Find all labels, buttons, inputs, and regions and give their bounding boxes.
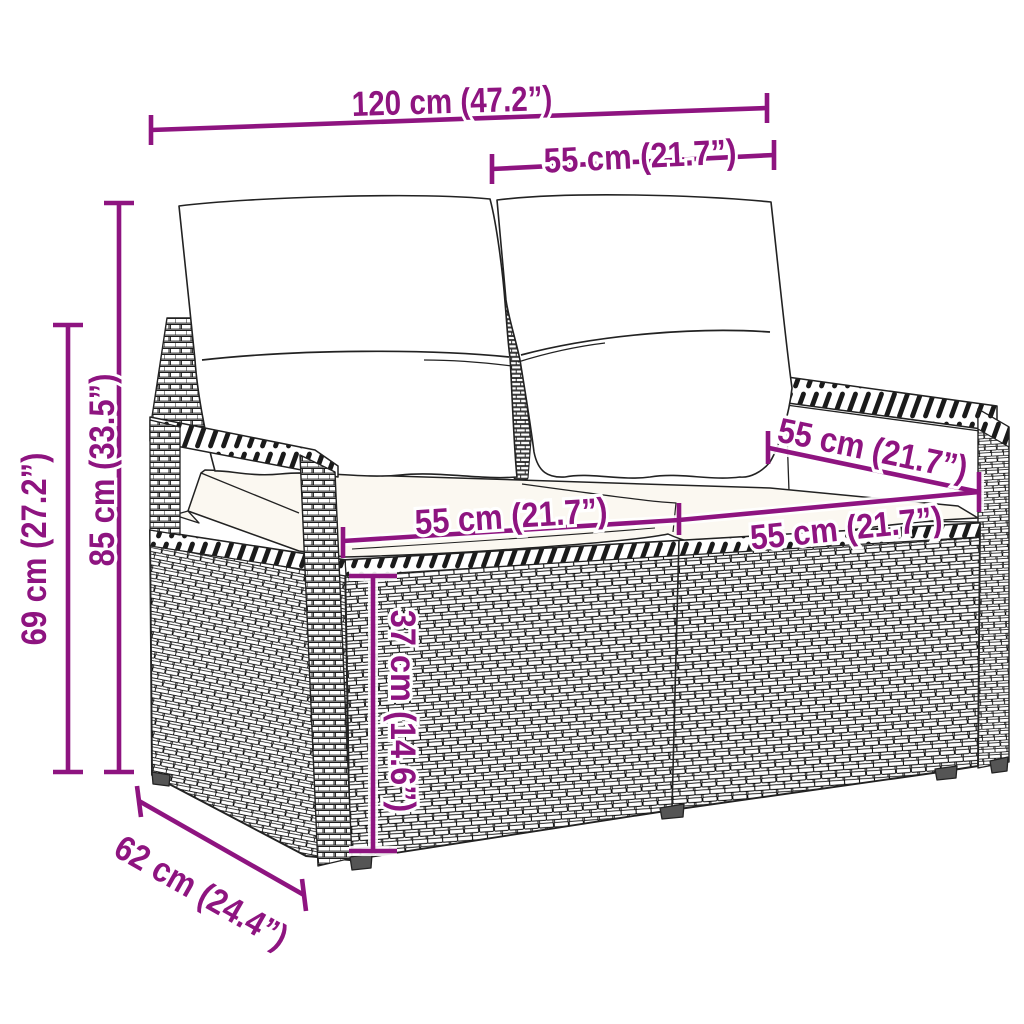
svg-text:120 cm (47.2”): 120 cm (47.2”) bbox=[351, 79, 553, 124]
svg-text:69 cm (27.2”): 69 cm (27.2”) bbox=[15, 453, 54, 646]
svg-text:85 cm (33.5”): 85 cm (33.5”) bbox=[83, 374, 122, 567]
svg-text:37 cm (14.6”): 37 cm (14.6”) bbox=[383, 610, 422, 813]
